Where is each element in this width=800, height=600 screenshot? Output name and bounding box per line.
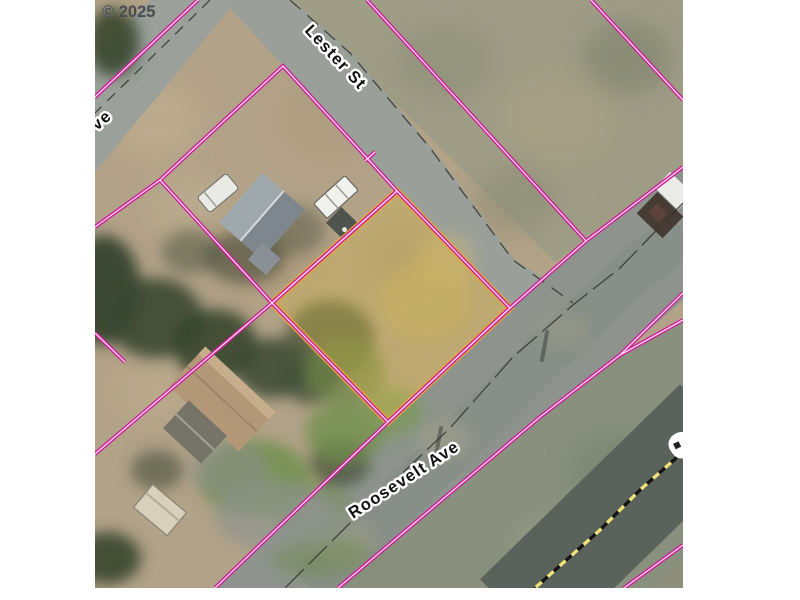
aerial-map: Lester St Roosevelt Ave ve © 2025 [95, 0, 683, 588]
aerial-map-graphic: Lester St Roosevelt Ave ve © 2025 [95, 0, 683, 588]
listing-photo-canvas: Lester St Roosevelt Ave ve © 2025 [0, 0, 800, 600]
copyright-watermark: © 2025 [102, 3, 155, 21]
